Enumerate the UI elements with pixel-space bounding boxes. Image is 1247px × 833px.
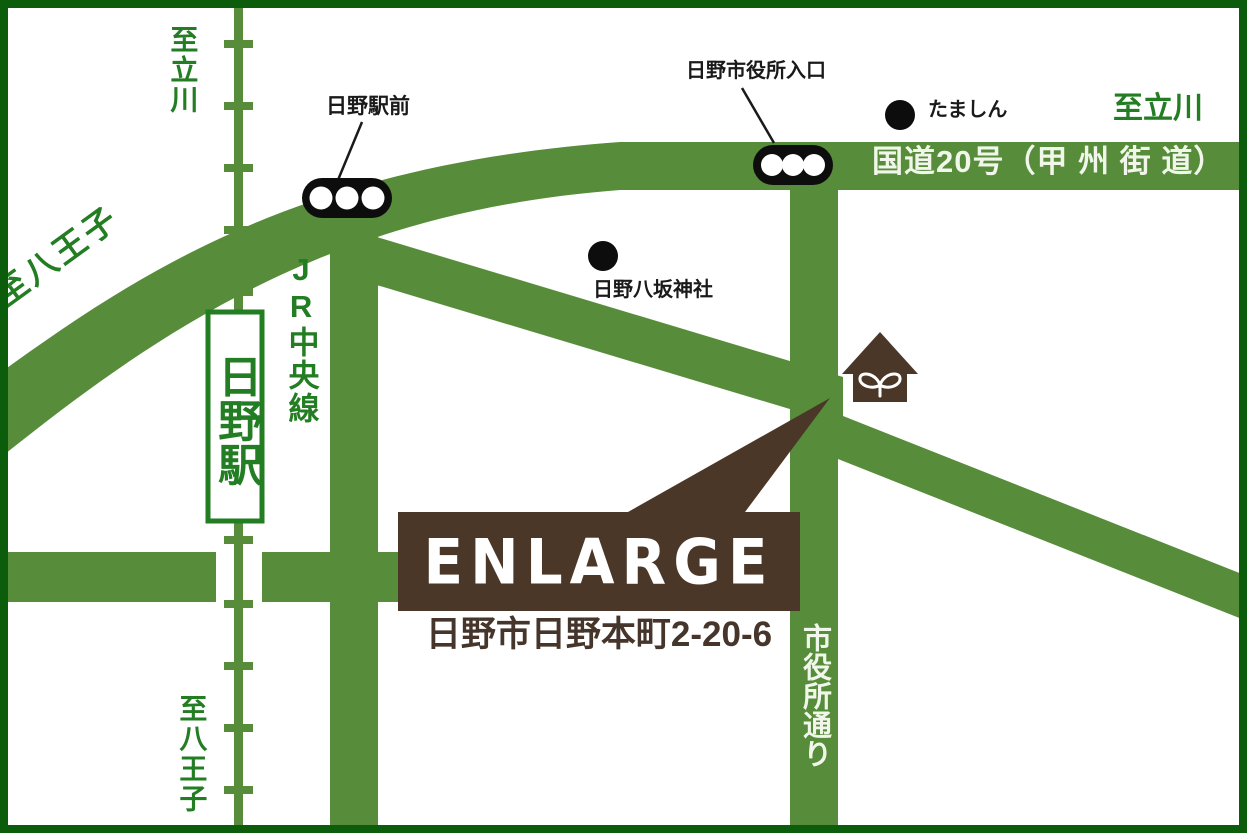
poi-dot-yasaka <box>588 241 618 271</box>
direction-label-hachioji-s: 至八王子 <box>177 694 206 814</box>
railway-tie <box>224 724 253 732</box>
destination-logo: ENLARGE <box>424 525 775 598</box>
poi-label-yasaka-shrine: 日野八坂神社 <box>593 280 713 301</box>
honmachi-road-west <box>0 552 216 602</box>
leader-line-shiyakusho <box>742 88 774 143</box>
access-map: 至立川 至八王子 至立川 至八王子 日野駅前 日野市役所入口 たましん 日野八坂… <box>0 0 1247 833</box>
diagonal-road-lower <box>838 414 1247 621</box>
destination-address: 日野市日野本町2-20-6 <box>398 617 800 654</box>
destination-callout: ENLARGE <box>398 512 800 611</box>
railway-tie <box>224 164 253 172</box>
direction-label-tachikawa-ne: 至立川 <box>1113 93 1203 125</box>
direction-label-tachikawa-nw: 至立川 <box>168 25 197 115</box>
station-front-road <box>330 196 378 833</box>
traffic-signal-icon-ekimae <box>302 178 392 218</box>
signal-label-shiyakusho-iriguchi: 日野市役所入口 <box>686 61 826 82</box>
traffic-signal-icon-shiyakusho <box>753 145 833 185</box>
railway-tie <box>224 40 253 48</box>
road-label-route20: 国道20号（甲 州 街 道） <box>872 146 1225 179</box>
leader-line-ekimae <box>338 122 362 180</box>
railway-label-jr-chuo-line: JR中央線 <box>284 252 317 425</box>
railway-tie <box>224 786 253 794</box>
station-label-hino: 日野駅 <box>212 354 258 486</box>
poi-label-tamashin: たましん <box>928 100 1007 121</box>
house-icon <box>842 332 918 402</box>
railway-tie <box>224 600 253 608</box>
signal-label-hino-ekimae: 日野駅前 <box>326 96 410 118</box>
road-label-shiyakusho-dori: 市役所通り <box>799 623 829 768</box>
poi-dot-tamashin <box>885 100 915 130</box>
railway-tie <box>224 102 253 110</box>
railway-tie <box>224 536 253 544</box>
railway-tie <box>224 662 253 670</box>
